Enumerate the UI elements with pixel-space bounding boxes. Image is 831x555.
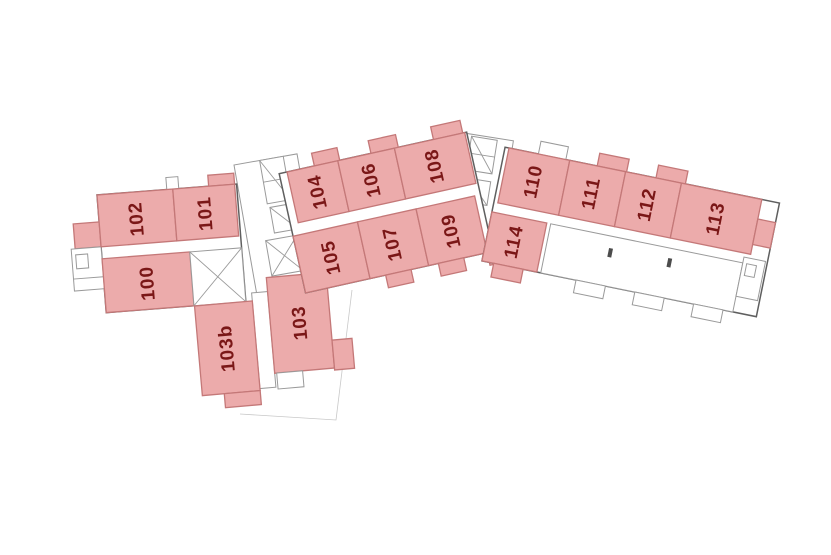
right-wing: 110 111 112 113 114 bbox=[479, 134, 782, 330]
east-end-detail bbox=[744, 264, 756, 278]
porch-room bbox=[277, 371, 304, 389]
entrance-bump bbox=[73, 222, 101, 249]
room-103-label: 103 bbox=[288, 305, 312, 341]
room-103b-bump bbox=[224, 391, 261, 408]
room-101[interactable]: 101 bbox=[173, 184, 239, 241]
roof-chimney bbox=[166, 177, 179, 190]
room-109[interactable]: 109 bbox=[416, 196, 487, 266]
room-112[interactable]: 112 bbox=[614, 172, 681, 238]
left-wing: 102 101 100 bbox=[66, 172, 246, 315]
room-100[interactable]: 100 bbox=[102, 252, 194, 313]
room-102[interactable]: 102 bbox=[97, 189, 177, 247]
utility-detail bbox=[76, 254, 89, 269]
room-103-annex bbox=[332, 338, 355, 370]
room-114[interactable]: 114 bbox=[482, 212, 547, 272]
room-102-label: 102 bbox=[125, 201, 149, 237]
floor-plan-page: 102 101 100 103b 103 bbox=[0, 0, 831, 555]
room-110[interactable]: 110 bbox=[498, 148, 570, 215]
room-100-label: 100 bbox=[136, 265, 160, 301]
room-103b-label: 103b bbox=[215, 324, 240, 373]
room-101-label: 101 bbox=[194, 195, 218, 231]
room-103b[interactable]: 103b bbox=[195, 301, 261, 396]
room-111[interactable]: 111 bbox=[559, 160, 626, 226]
floor-plan-svg: 102 101 100 103b 103 bbox=[0, 0, 831, 555]
